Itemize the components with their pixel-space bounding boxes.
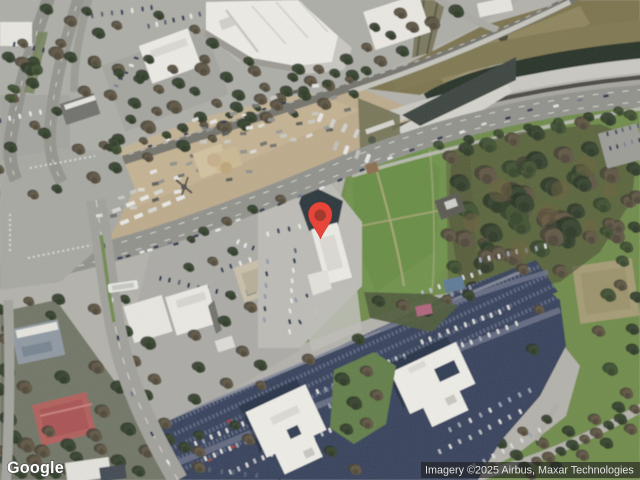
svg-text:Google: Google <box>7 459 64 477</box>
svg-text:Imagery ©2025 Airbus, Maxar Te: Imagery ©2025 Airbus, Maxar Technologies <box>425 465 634 477</box>
